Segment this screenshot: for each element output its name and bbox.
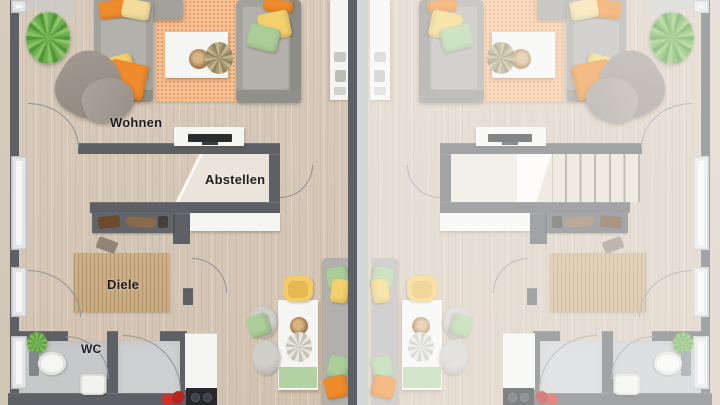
window-living [11, 156, 27, 250]
sideboard-item-box [158, 216, 168, 228]
hallway-rug [550, 253, 646, 312]
cooktop-burner-2 [203, 393, 212, 402]
cooktop-burner-1 [520, 393, 529, 402]
label-hallway: Diele [107, 277, 139, 292]
wardrobe-shelf [440, 213, 530, 231]
sideboard-item-shoes [564, 216, 595, 228]
plant-living [650, 12, 694, 64]
toilet-bowl [654, 352, 682, 375]
bench-pillow-yellow [370, 278, 390, 304]
sofa-right-armrest [236, 90, 301, 103]
floorplan: Wohnen Abstellen Diele WC [0, 0, 720, 405]
kitchen-tall-cabinet [185, 333, 217, 390]
sofa-right-back [290, 0, 301, 103]
chair-gray-2 [252, 340, 280, 375]
label-living: Wohnen [110, 115, 162, 130]
table-runner [403, 367, 441, 388]
window-wc [693, 336, 709, 389]
wall-storage-right [269, 154, 280, 203]
cooktop-burner-1 [191, 393, 200, 402]
bench-pillow-yellow [329, 278, 349, 304]
console-decor-3 [334, 87, 346, 95]
sideboard-item-bag [97, 215, 120, 229]
plant-living [26, 12, 70, 64]
tv [188, 134, 232, 142]
party-wall-dark [348, 0, 357, 405]
wall-stub-hallway [527, 288, 537, 305]
table-runner [279, 367, 317, 388]
window-living [693, 156, 709, 250]
tv-stand [202, 142, 218, 145]
decor-dried-plant [205, 42, 233, 74]
table-flowers [286, 332, 312, 362]
chair-yellow-seat [288, 281, 308, 298]
console-decor-2 [335, 70, 346, 82]
chair-gray-2 [440, 340, 468, 375]
window-top [693, 0, 709, 13]
toilet-bowl [38, 352, 66, 375]
stair-wedge [517, 154, 552, 202]
tv [488, 134, 532, 142]
unit-left: Wohnen Abstellen Diele WC [0, 0, 352, 405]
wall-stub-wardrobe [530, 213, 547, 244]
staircase [517, 154, 640, 202]
toilet-cistern [681, 351, 691, 376]
wall-console [330, 0, 350, 100]
console-decor-1 [334, 52, 346, 62]
wall-storage-right [440, 154, 451, 203]
console-decor-1 [374, 52, 386, 62]
console-decor-2 [374, 70, 385, 82]
decor-dried-plant [487, 42, 515, 74]
tv-stand [502, 142, 518, 145]
wall-console [370, 0, 390, 100]
sideboard-item-bag [599, 215, 622, 229]
sofa-right-back [419, 0, 430, 103]
chair-yellow-seat [412, 281, 432, 298]
console-decor-3 [374, 87, 386, 95]
window-hallway [11, 267, 27, 317]
cooktop-burner-2 [508, 393, 517, 402]
sofa-right-armrest [419, 90, 484, 103]
window-hallway [693, 267, 709, 317]
sideboard-item-shoes [126, 216, 157, 228]
unit-right: Wohnen Abstellen Diele WC [368, 0, 720, 405]
wc-sink [80, 374, 106, 395]
wc-sink [614, 374, 640, 395]
window-wc [11, 336, 27, 389]
kitchen-tall-cabinet [503, 333, 535, 390]
sideboard-item-box [552, 216, 562, 228]
party-wall-light [357, 0, 368, 405]
label-storage: Abstellen [205, 172, 265, 187]
wall-stub-wardrobe [173, 213, 190, 244]
table-flowers [408, 332, 434, 362]
window-top [11, 0, 27, 13]
stair-treads [552, 154, 640, 202]
label-wc: WC [81, 342, 101, 356]
wardrobe-shelf [190, 213, 280, 231]
